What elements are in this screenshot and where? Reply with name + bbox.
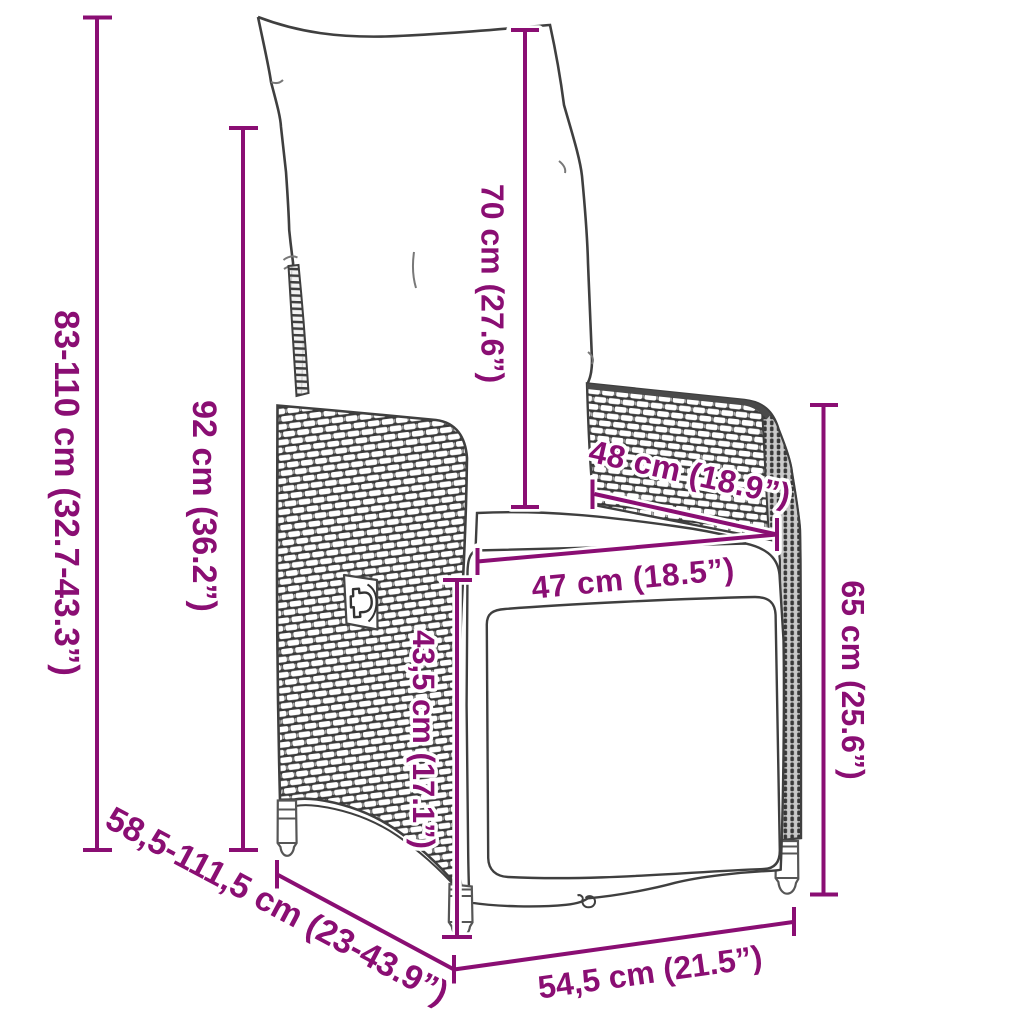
svg-text:83-110 cm (32.7-43.3”): 83-110 cm (32.7-43.3”) — [47, 310, 86, 676]
svg-text:43,5 cm (17.1”): 43,5 cm (17.1”) — [406, 630, 441, 849]
svg-text:70 cm (27.6”): 70 cm (27.6”) — [474, 184, 510, 383]
svg-text:65 cm (25.6”): 65 cm (25.6”) — [835, 580, 871, 779]
svg-text:92 cm (36.2”): 92 cm (36.2”) — [185, 400, 223, 612]
